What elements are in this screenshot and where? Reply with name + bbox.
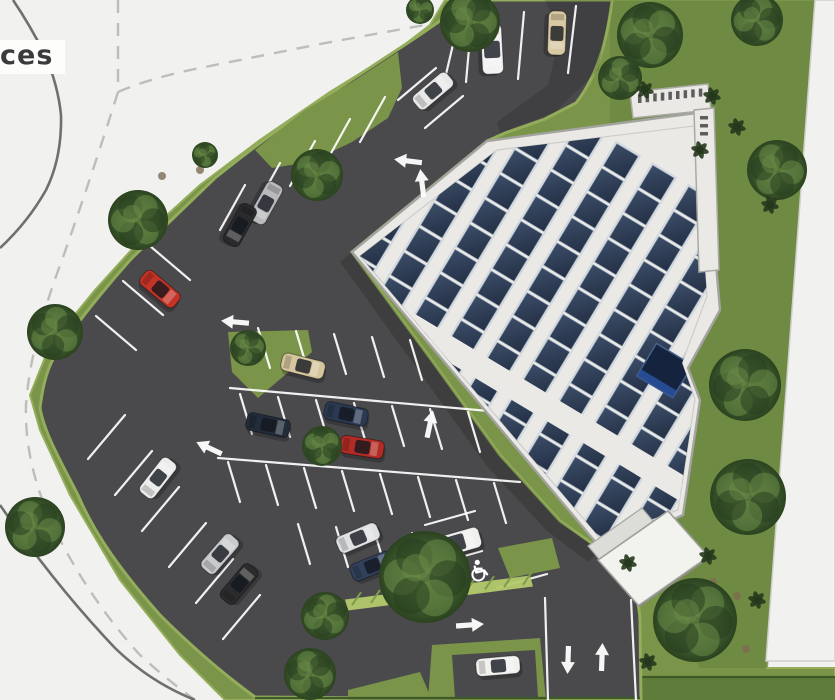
tree-canopy [747,140,807,200]
tree-canopy [653,578,737,662]
tree-canopy [291,149,343,201]
tree-canopy [710,459,786,535]
tree-canopy [709,349,781,421]
tree-canopy [5,497,65,557]
mulch-patch [733,592,741,600]
tree-canopy [301,592,349,640]
tree-canopy [27,304,83,360]
mulch-patch [742,645,750,653]
tree-canopy [284,648,336,700]
site-plan-canvas [0,0,835,700]
cropped-label: ces [0,40,65,74]
tree-canopy [108,190,168,250]
site-plan-rendering: ces [0,0,835,700]
car [475,655,523,681]
tree-canopy [598,56,642,100]
car [543,11,567,58]
tree-canopy [379,531,471,623]
mulch-patch [158,172,166,180]
tree-canopy [302,426,342,466]
tree-canopy [230,330,266,366]
tree-canopy [192,142,218,168]
